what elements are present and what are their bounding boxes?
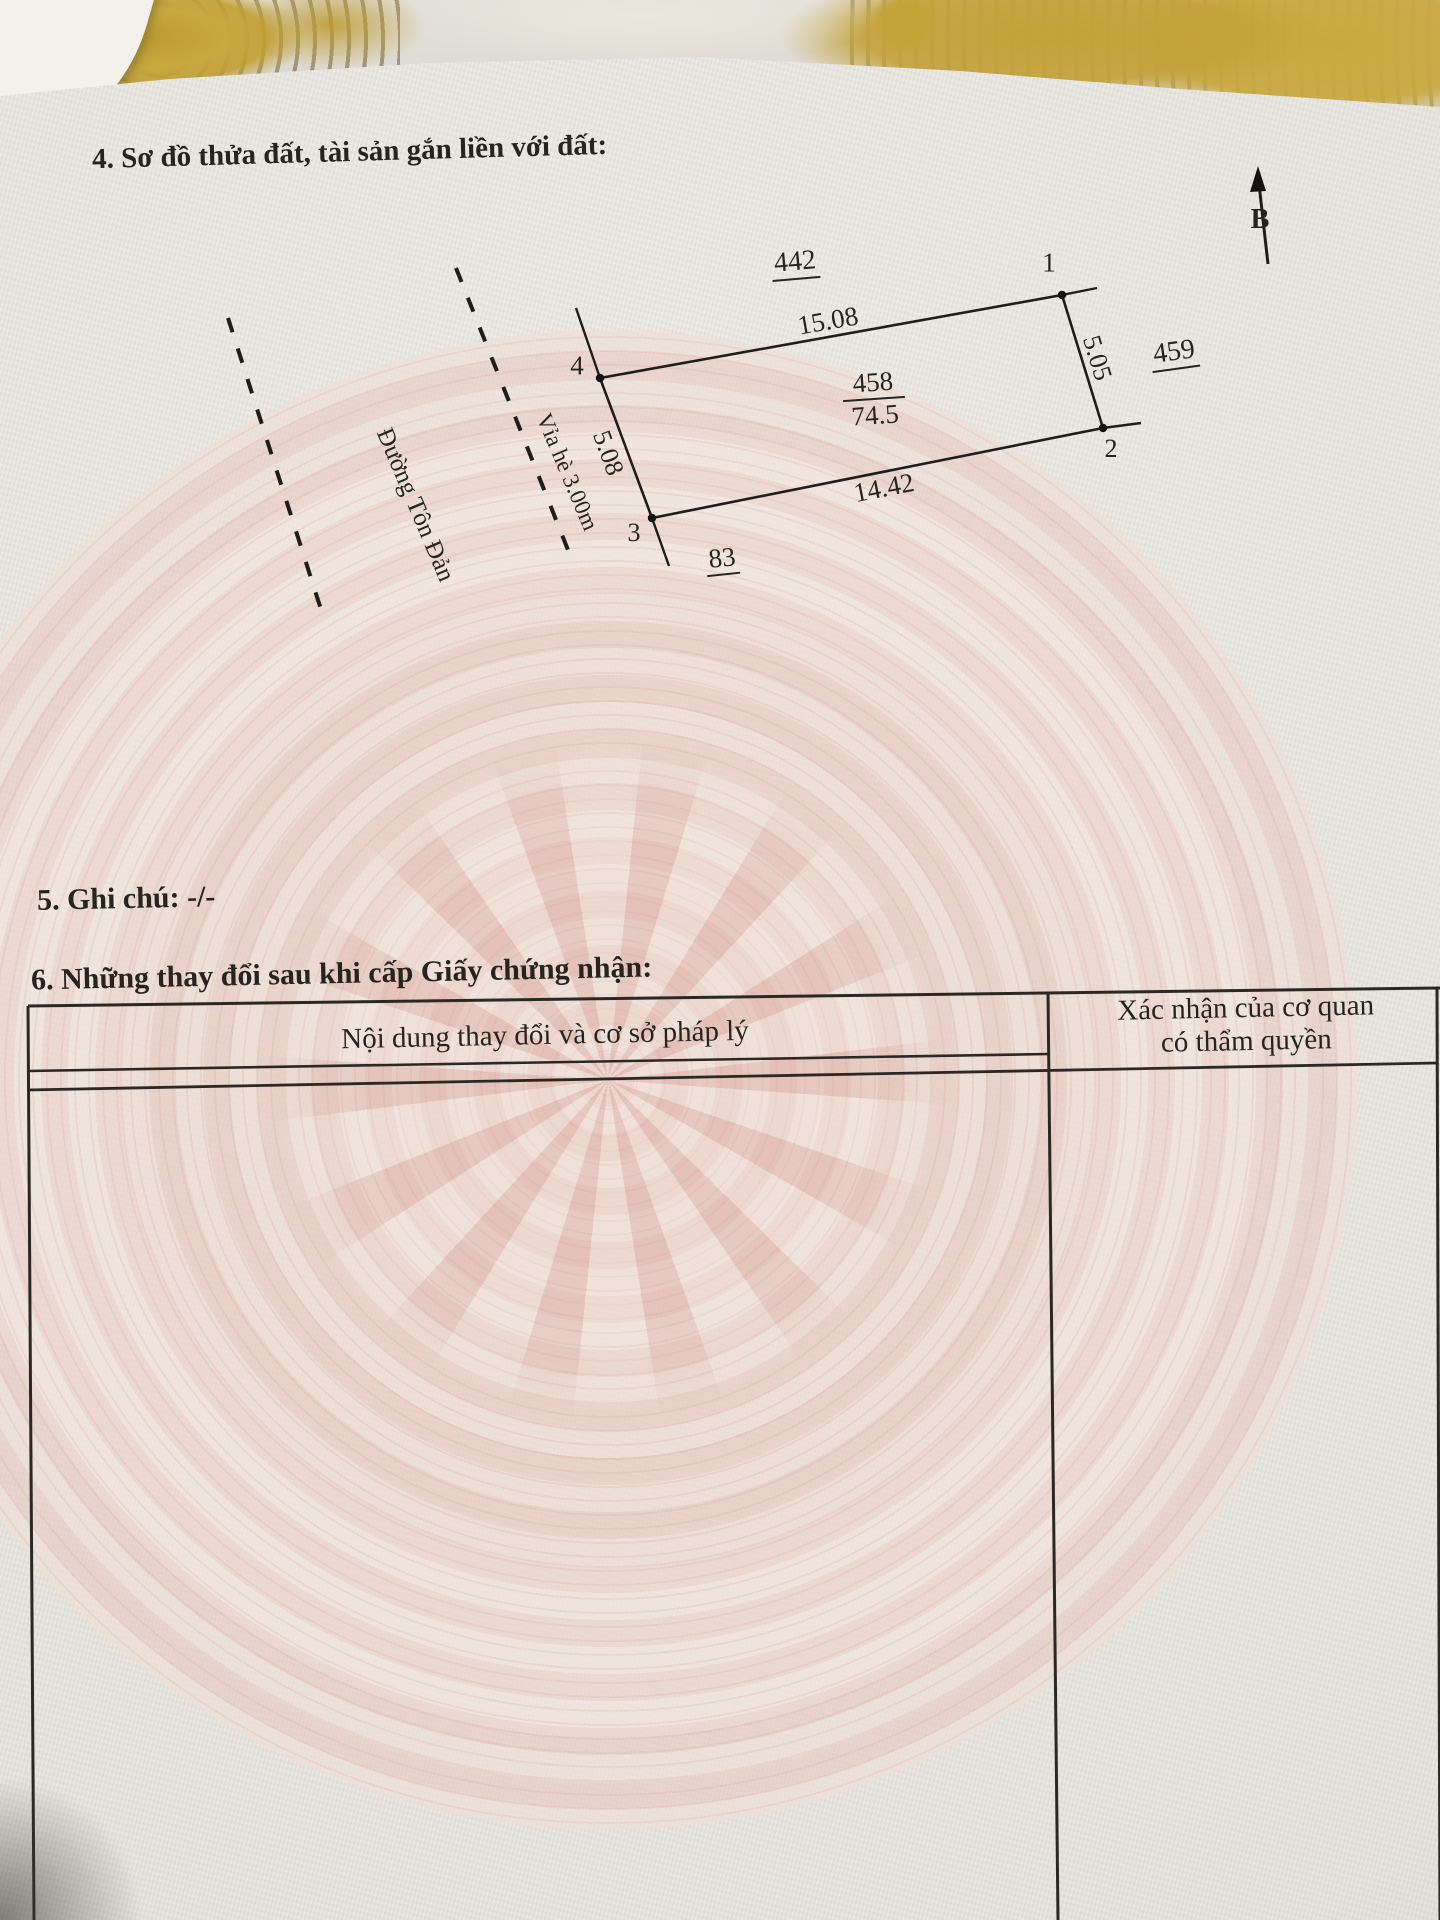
bottom-left-shadow (0, 1780, 150, 1920)
road-edge-dashed-line (228, 318, 325, 622)
adjacent-plot-number-bottom: 83 (704, 541, 740, 575)
table-col2-header-line2: có thẩm quyền (1078, 1022, 1415, 1062)
table-col2-header: Xác nhận của cơ quan có thẩm quyền (1077, 988, 1414, 1062)
corner-point-4 (596, 374, 604, 382)
adjacent-plot-top-value: 442 (770, 244, 821, 282)
north-arrow-head (1250, 166, 1266, 192)
table-header-bottom-left-cell (28, 1054, 1048, 1071)
corner-point-3 (648, 514, 656, 522)
corner-point-1 (1058, 291, 1066, 299)
parcel-number: 458 (841, 366, 905, 399)
corner-label-3: 3 (628, 518, 641, 548)
adjacent-plot-number-right: 459 (1148, 333, 1200, 371)
north-label: B (1251, 204, 1270, 236)
corner-label-2: 2 (1105, 434, 1118, 464)
corner-label-1: 1 (1042, 248, 1056, 279)
adjacent-plot-number-top: 442 (770, 244, 821, 280)
corner-point-2 (1099, 424, 1107, 432)
parcel-area: 74.5 (843, 399, 907, 432)
section5-text: 5. Ghi chú: -/- (37, 880, 216, 918)
adjacent-plot-right-value: 459 (1148, 333, 1200, 373)
parcel-number-area-fraction: 458 74.5 (841, 366, 907, 432)
corner-label-4: 4 (570, 351, 584, 382)
adjacent-plot-bottom-value: 83 (704, 541, 740, 577)
photographed-land-certificate-page: 4. Sơ đồ thửa đất, tài sản gắn liền với … (0, 0, 1440, 1920)
table-column-divider (1048, 992, 1058, 1920)
certificate-paper: 4. Sơ đồ thửa đất, tài sản gắn liền với … (0, 0, 1440, 1920)
